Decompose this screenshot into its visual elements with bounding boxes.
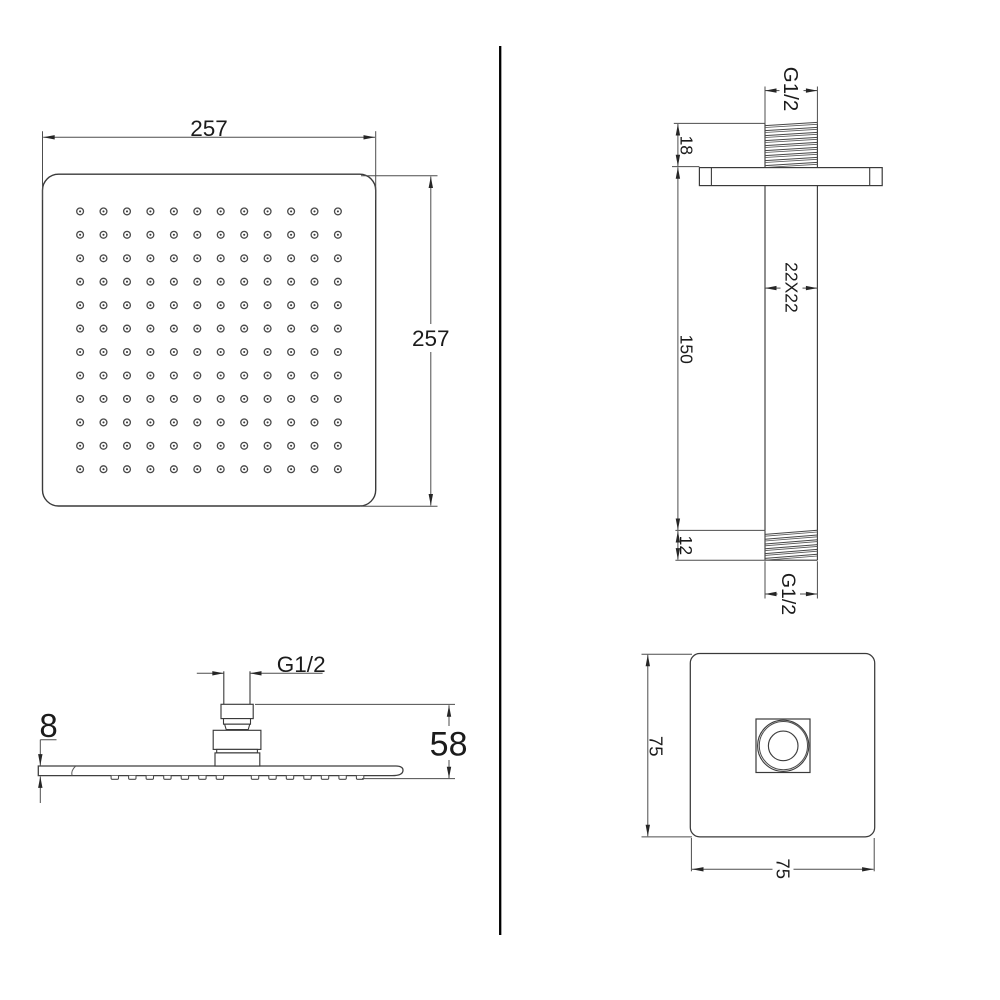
svg-text:G1/2: G1/2 xyxy=(777,573,799,615)
svg-text:150: 150 xyxy=(677,335,697,364)
svg-text:58: 58 xyxy=(430,726,468,764)
svg-text:257: 257 xyxy=(190,116,228,141)
svg-text:18: 18 xyxy=(676,136,696,155)
svg-text:12: 12 xyxy=(676,536,696,555)
svg-text:75: 75 xyxy=(645,736,666,757)
svg-text:G1/2: G1/2 xyxy=(277,652,326,677)
svg-text:75: 75 xyxy=(772,858,793,879)
svg-text:257: 257 xyxy=(412,326,450,351)
svg-text:22X22: 22X22 xyxy=(782,262,802,313)
svg-text:8: 8 xyxy=(39,707,57,744)
svg-text:G1/2: G1/2 xyxy=(779,67,802,111)
